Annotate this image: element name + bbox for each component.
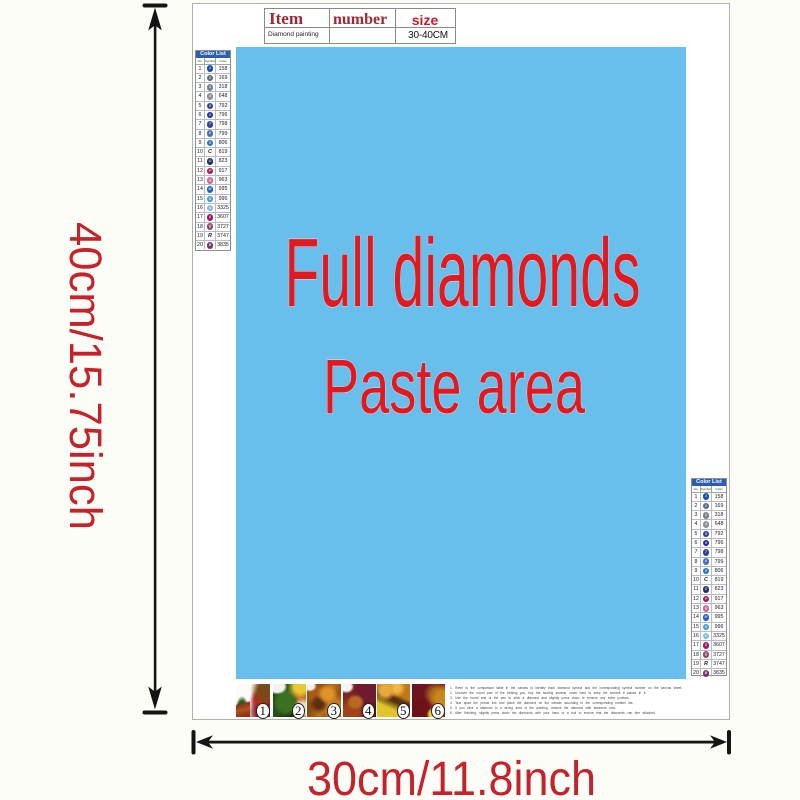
svg-text:Paste area: Paste area <box>323 344 585 430</box>
svg-text:Full diamonds: Full diamonds <box>285 218 641 327</box>
svg-text:30cm/11.8inch: 30cm/11.8inch <box>307 753 596 800</box>
svg-text:40cm/15.75inch: 40cm/15.75inch <box>60 222 111 530</box>
